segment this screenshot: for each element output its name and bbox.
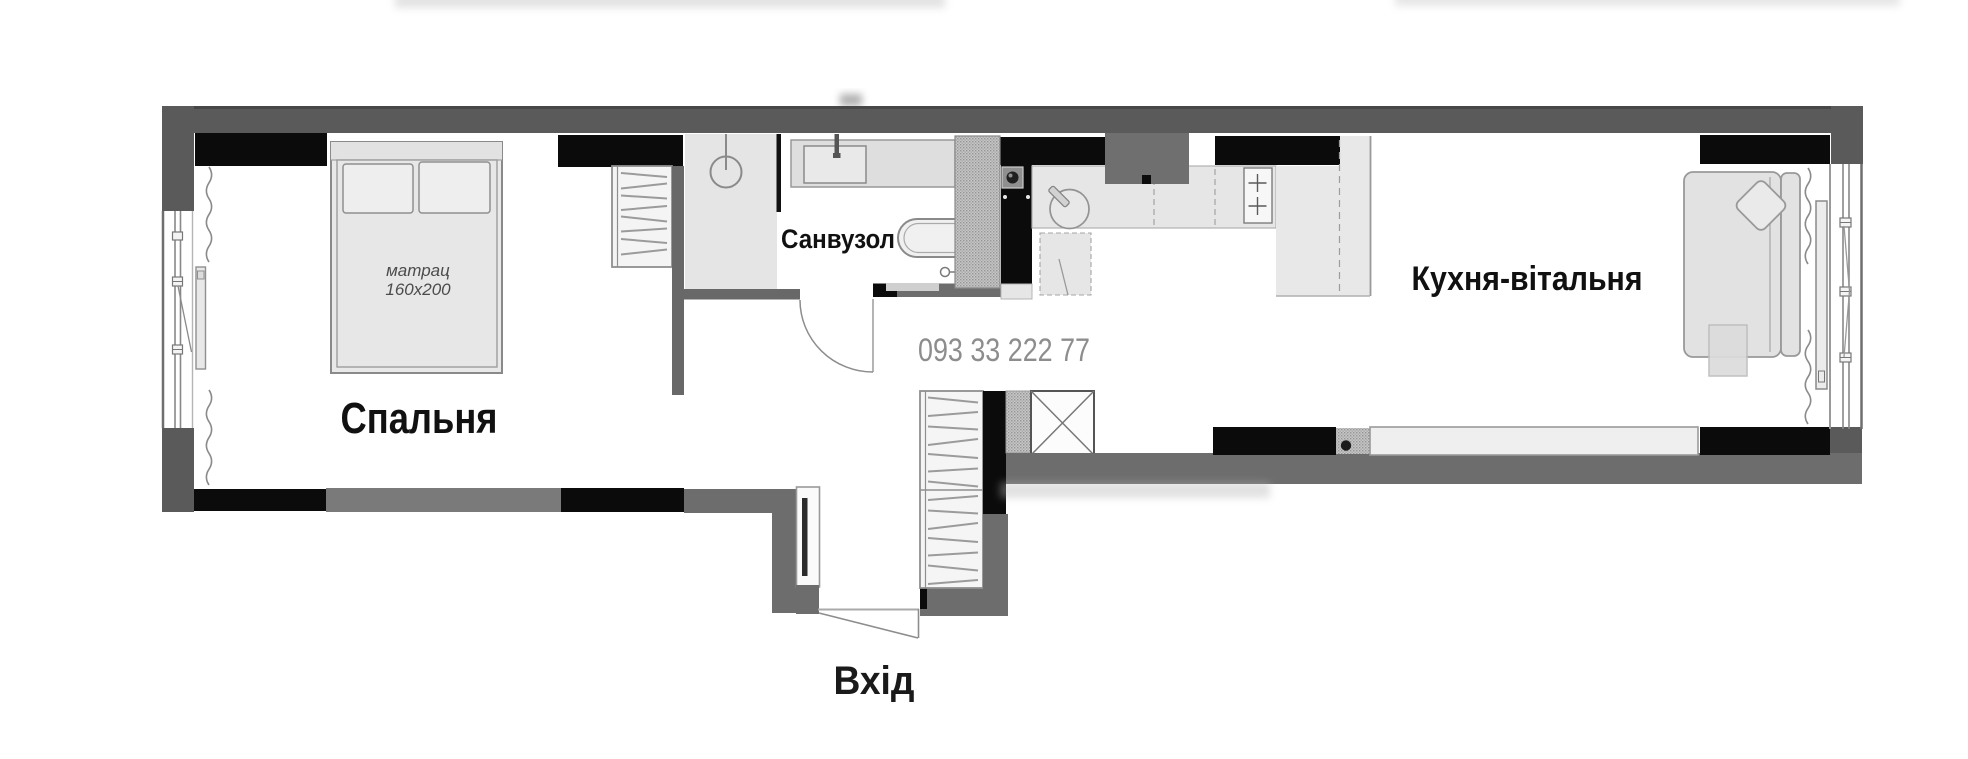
svg-text:Вхід: Вхід [834, 659, 915, 703]
svg-text:Санвузол: Санвузол [781, 224, 895, 254]
svg-text:матрац: матрац [386, 261, 450, 280]
svg-text:160х200: 160х200 [385, 280, 451, 299]
svg-text:Кухня-вітальня: Кухня-вітальня [1412, 260, 1643, 298]
svg-text:Спальня: Спальня [341, 394, 498, 443]
svg-text:093 33 222 77: 093 33 222 77 [918, 332, 1090, 368]
